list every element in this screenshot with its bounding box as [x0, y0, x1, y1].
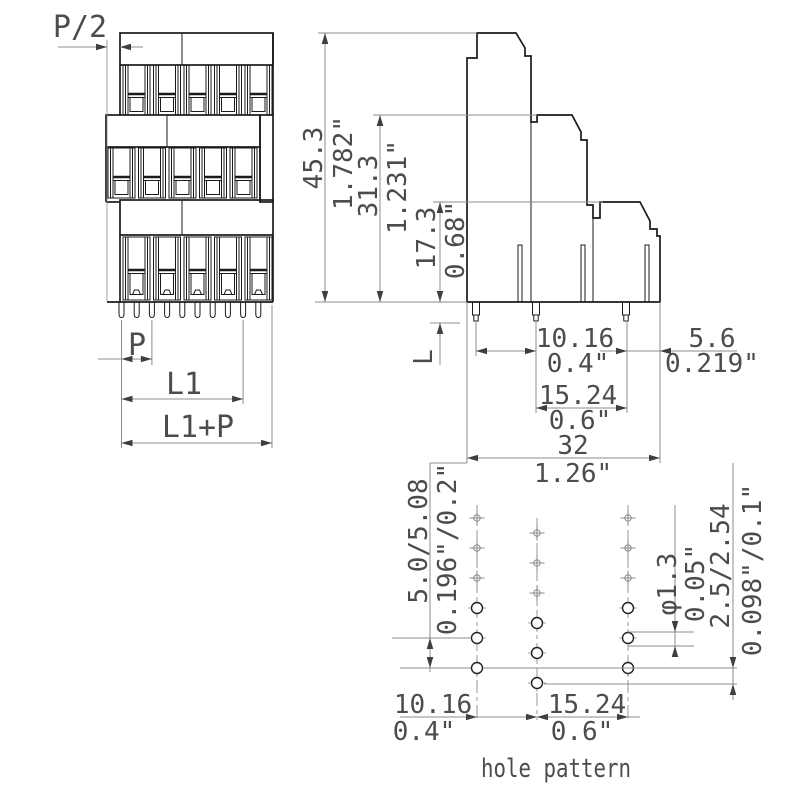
clamp — [108, 148, 135, 198]
hole-pattern-caption: hole pattern — [481, 754, 631, 784]
solder-pin — [225, 302, 230, 318]
side-view-dimension-lines — [315, 33, 737, 463]
front-view: P/2 P L1 L1+P — [53, 10, 273, 448]
position-marker — [470, 511, 485, 526]
solder-pin — [180, 302, 185, 318]
solder-pin — [533, 302, 540, 321]
hole-pattern-centerlines — [477, 505, 628, 720]
dim-row-offset-mm: 2.5/2.54 — [706, 503, 736, 628]
clamp — [154, 237, 181, 300]
solder-pin — [195, 302, 200, 318]
position-marker — [530, 586, 545, 601]
solder-pin — [256, 302, 261, 318]
front-view-clamps — [108, 65, 272, 300]
terminal-block-drawing: P/2 P L1 L1+P — [0, 0, 800, 800]
position-marker — [530, 526, 545, 541]
clamp — [230, 148, 257, 198]
side-view: 45.3 1.782" 31.3 1.231" 17.3 0.68" L 10.… — [299, 33, 759, 489]
solder-pin — [210, 302, 215, 318]
dim-row-offset-in: 0.098"/0.1" — [738, 484, 768, 656]
clamp — [169, 148, 196, 198]
side-view-housing — [467, 33, 660, 321]
dim-hole-diameter-mm: φ1.3 — [653, 553, 683, 616]
dim-row-pitch-mm: 5.0/5.08 — [404, 478, 434, 603]
dim-pin-length: L — [409, 349, 439, 365]
clamp — [215, 65, 242, 115]
dim-col-spacing2-mm: 15.24 — [548, 690, 626, 720]
front-view-pins — [119, 302, 261, 318]
clamp — [123, 65, 150, 115]
position-marker — [621, 541, 636, 556]
dim-col-spacing2-in: 0.6" — [551, 717, 614, 747]
dim-depth-in: 1.26" — [534, 459, 612, 489]
solder-hole — [468, 599, 486, 617]
hole-pattern-markers — [468, 511, 637, 693]
solder-hole — [528, 674, 546, 692]
position-marker — [470, 571, 485, 586]
clamp — [184, 237, 211, 300]
solder-hole — [528, 644, 546, 662]
position-marker — [470, 541, 485, 556]
hole-pattern-view: 5.0/5.08 0.196"/0.2" φ1.3 0.05" 2.5/2.54… — [392, 463, 768, 784]
dim-height-low-in: 0.68" — [441, 201, 471, 279]
dim-length-plus-pitch: L1+P — [162, 410, 234, 445]
dim-pitch-half: P/2 — [53, 10, 107, 45]
clamp — [215, 237, 242, 300]
dim-height-mid-mm: 31.3 — [354, 155, 384, 218]
position-marker — [621, 571, 636, 586]
clamp — [154, 65, 181, 115]
position-marker — [530, 556, 545, 571]
solder-pin — [241, 302, 246, 318]
solder-pin — [165, 302, 170, 318]
position-marker — [621, 511, 636, 526]
dim-edge-offset-in: 0.219" — [665, 349, 759, 379]
dim-row-pitch-in: 0.196"/0.2" — [433, 463, 463, 635]
clamp — [123, 237, 150, 300]
solder-pin — [134, 302, 139, 318]
clamp — [184, 65, 211, 115]
dim-col-spacing1-mm: 10.16 — [394, 690, 472, 720]
dim-pin-spacing1-in: 0.4" — [547, 349, 610, 379]
clamp — [139, 148, 166, 198]
solder-pin — [623, 302, 630, 321]
solder-hole — [619, 599, 637, 617]
solder-hole — [528, 614, 546, 632]
clamp — [245, 65, 272, 115]
solder-pin — [119, 302, 124, 318]
dim-height-mid-in: 1.231" — [383, 140, 413, 234]
dim-height-total-mm: 45.3 — [299, 127, 329, 190]
clamp — [200, 148, 227, 198]
solder-pin — [473, 302, 480, 321]
dim-pitch: P — [128, 328, 146, 363]
solder-pin — [149, 302, 154, 318]
dim-col-spacing1-in: 0.4" — [393, 717, 456, 747]
dim-height-low-mm: 17.3 — [412, 207, 442, 270]
technical-drawing-page: P/2 P L1 L1+P — [0, 0, 800, 800]
dim-length: L1 — [166, 367, 202, 402]
clamp — [245, 237, 272, 300]
dim-depth-mm: 32 — [557, 431, 588, 461]
